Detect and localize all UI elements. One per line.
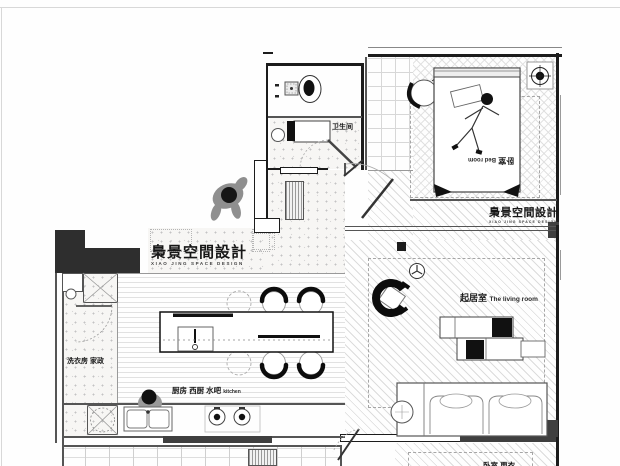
laundry-label-text: 洗衣房 家政: [67, 358, 104, 365]
laundry-symbols: [66, 273, 118, 435]
ceiling-light-icon: [527, 62, 553, 89]
wall-fixture: [275, 95, 279, 98]
kitchen-label: 厨房 西厨 水吧 kitchen: [172, 385, 241, 396]
bedroom-label-en: Bed room: [468, 156, 496, 162]
bed: [434, 68, 520, 197]
stove-burners: [205, 406, 260, 432]
bedroom-label-cn: 卧室: [498, 156, 514, 165]
entry-door: [344, 160, 393, 218]
watermark-bedroom-cn: 梟景空間設計: [489, 207, 558, 219]
toilet-icon: [299, 76, 321, 103]
living-label: 起居室 The living room: [460, 291, 538, 304]
kitchen-label-cn: 厨房 西厨 水吧: [172, 386, 221, 395]
furniture-layer: [0, 0, 620, 466]
fan-symbol-icon: [410, 264, 425, 279]
bathroom-label-text: 卫生间: [332, 124, 353, 131]
living-label-en: The living room: [490, 296, 538, 303]
bottom-room-label: 卧室 更衣: [483, 460, 515, 466]
floor-plan: 卫生间 卧室 Bed room 起居室 The living room 洗衣房 …: [0, 0, 620, 466]
person-walking-icon: [208, 175, 250, 222]
living-label-cn: 起居室: [460, 293, 487, 303]
wall-fixture: [275, 84, 279, 87]
laundry-door: [76, 306, 112, 342]
bedroom-label: 卧室 Bed room: [468, 155, 514, 166]
shower-drain-icon: [285, 82, 298, 95]
watermark-bedroom-en: XIAO JING SPACE DESIGN: [489, 221, 558, 225]
armchair: [376, 281, 410, 315]
laundry-label: 洗衣房 家政: [67, 356, 104, 366]
watermark-center-en: XIAO JING SPACE DESIGN: [151, 262, 247, 267]
counter-sink: [124, 407, 172, 431]
kitchen-island: [160, 312, 333, 352]
bottom-room-label-text: 卧室 更衣: [483, 461, 515, 466]
living-bottom-door: [333, 429, 359, 460]
sofa: [391, 383, 547, 436]
bathroom-vanity: [272, 121, 331, 142]
coffee-table: [440, 317, 545, 360]
kitchen-label-en: kitchen: [223, 389, 241, 395]
bathroom-label: 卫生间: [332, 122, 353, 132]
watermark-center: 梟景空間設計 XIAO JING SPACE DESIGN: [151, 245, 247, 267]
watermark-center-cn: 梟景空間設計: [151, 245, 247, 261]
watermark-bedroom: 梟景空間設計 XIAO JING SPACE DESIGN: [489, 204, 558, 225]
